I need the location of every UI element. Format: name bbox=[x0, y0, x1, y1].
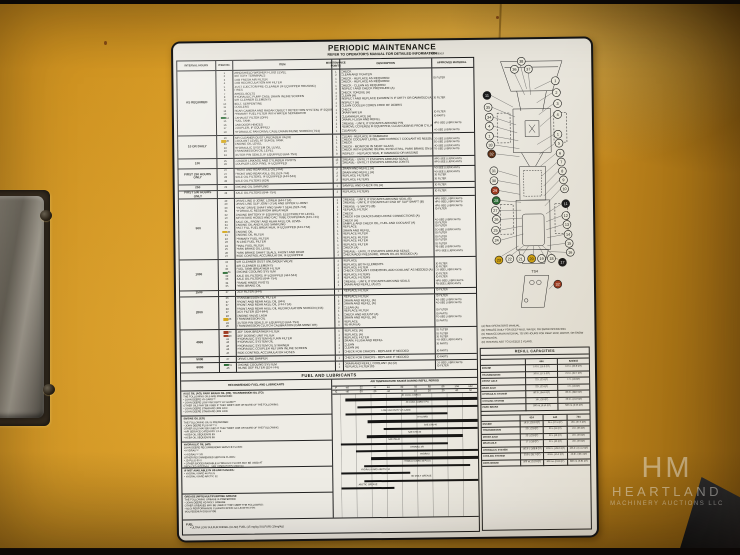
refill-value: 600 mL (0.63 QT) bbox=[543, 460, 566, 467]
diagram-callout: 25 bbox=[492, 226, 500, 234]
panel-handle bbox=[0, 196, 44, 418]
item-name-column: LOADER LINKAGE AND CYLINDER PIVOTSCOUPLE… bbox=[233, 158, 332, 168]
decal-right-column: TS4 383637123415678910111213141516171135… bbox=[476, 55, 592, 531]
diagram-callout: 36 bbox=[510, 65, 518, 73]
col-description: DESCRIPTION bbox=[339, 58, 431, 68]
col-maintenance-points: MAINTENANCE POINTS bbox=[331, 60, 339, 69]
svg-text:1: 1 bbox=[557, 133, 559, 137]
item-name-column: TRANSMISSION OIL FILTERFRONT AND REAR AX… bbox=[235, 295, 334, 329]
item-description-column: REPLACEREPLACE BOTH ELEMENTSREPLACE FILT… bbox=[342, 258, 434, 288]
diagram-callout: 28 bbox=[492, 197, 500, 205]
interval-label: 500 bbox=[179, 199, 218, 260]
lubricant-section-line: • ACEA OIL SEQUENCE E6 bbox=[184, 434, 330, 439]
svg-text:19: 19 bbox=[539, 257, 543, 261]
color-chip bbox=[223, 318, 228, 320]
item-number-column: 2929303132103334352021222324252627 bbox=[217, 199, 235, 260]
lubricant-recommendations: RECOMMENDED FUEL AND LUBRICANTS AXLE OIL… bbox=[181, 379, 334, 519]
interval-label: 2000 bbox=[180, 297, 218, 330]
svg-text:17: 17 bbox=[560, 261, 564, 265]
diagram-callout: 22 bbox=[506, 255, 514, 263]
diagram-callout: 38 bbox=[517, 57, 525, 65]
diagram-callout: 7 bbox=[557, 158, 565, 166]
celsius-label: C bbox=[332, 391, 340, 395]
item-description: GREASE - UNTIL IT ESCAPES AROUND JOINTS bbox=[342, 161, 432, 166]
diagram-callout: 9 bbox=[559, 176, 567, 184]
svg-text:13: 13 bbox=[565, 223, 569, 227]
refill-value: 800 mL (0.84 QT) bbox=[567, 459, 590, 466]
photo-edge-bottom bbox=[0, 548, 740, 555]
refill-value: 500 mL (0.53 QT) bbox=[525, 404, 557, 411]
diagram-callout: 35 bbox=[484, 103, 492, 111]
color-chip bbox=[222, 231, 227, 233]
celsius-tick: 0 bbox=[395, 390, 409, 394]
approved-material-column: JD FILTER bbox=[433, 182, 473, 188]
approved-material-column: MPG-SEE LUBRICANTSMPG-SEE LUBRICANTS bbox=[432, 156, 472, 165]
item-number: 27 bbox=[219, 255, 234, 259]
maintenance-points-column: 1 bbox=[335, 356, 343, 361]
diagram-callout: 18 bbox=[547, 254, 555, 262]
diagram-callout: 8 bbox=[558, 167, 566, 175]
equipment-photo: PERIODIC MAINTENANCE REFER TO OPERATOR'S… bbox=[0, 0, 740, 555]
refill-row-label: PARK BRAKE bbox=[482, 460, 520, 467]
maintenance-points: 1 bbox=[336, 350, 342, 354]
fahrenheit-tick: 50 bbox=[409, 385, 423, 389]
diagram-callout: 17 bbox=[558, 258, 566, 266]
svg-text:28: 28 bbox=[494, 199, 498, 203]
color-chip bbox=[224, 364, 229, 366]
maintenance-points: 1 bbox=[334, 129, 340, 133]
maintenance-group: 400039404142434445DEF TANK BREATHER FILT… bbox=[180, 326, 476, 356]
item-number: 28 bbox=[218, 192, 233, 196]
interval-label: 5000 bbox=[181, 357, 219, 363]
item-description-column: REPLACE (A)REPLACE (A)REPLACE FILTERDRAI… bbox=[342, 328, 434, 355]
svg-text:34: 34 bbox=[487, 116, 491, 120]
footnote: (C) REDUCE DRAIN INTERVAL TO 500 HOURS F… bbox=[482, 332, 588, 340]
lubricant-bar bbox=[341, 487, 394, 490]
item-name: OUTER PIN SEALS, IF EQUIPPED (644-TS4) bbox=[235, 152, 332, 157]
svg-text:18: 18 bbox=[549, 257, 553, 261]
lubricant-section: GREASE (MPG) MULTIPURPOSE GREASETHE FOLL… bbox=[182, 493, 332, 520]
item-description: DRAIN AND REFILL (A) (C) bbox=[343, 283, 433, 288]
diagram-callout: 4 bbox=[485, 122, 493, 130]
lubricant-section: HYDRAULIC OIL (HO)JOHN DEERE RECOMMENDED… bbox=[182, 441, 332, 469]
celsius-tick: -10 bbox=[381, 390, 395, 394]
diagram-callout: 27 bbox=[491, 206, 499, 214]
item-description: CLEAN (A) bbox=[342, 128, 432, 133]
fahrenheit-tick: 68 bbox=[422, 385, 436, 389]
diagram-callout: 19 bbox=[538, 255, 546, 263]
refill-capacities-title: REFILL CAPACITIES bbox=[481, 348, 589, 357]
svg-text:22: 22 bbox=[508, 257, 512, 261]
diagram-callout: 24 bbox=[493, 236, 501, 244]
svg-text:2: 2 bbox=[555, 91, 557, 95]
refill-tables: 444524/544ENGINE14.5 L (15.3 QT)19.5 L (… bbox=[481, 358, 590, 467]
maintenance-points-column: 11 bbox=[335, 362, 343, 371]
color-chip bbox=[224, 335, 229, 337]
color-chip bbox=[221, 140, 226, 142]
diagram-callout: 15 bbox=[565, 239, 573, 247]
approved-material-column: CG-SEE LUBRICANTSEO-SEE LUBRICANTSHO-SEE… bbox=[432, 133, 472, 156]
item-number-column: 29 bbox=[217, 185, 234, 190]
lubricant-sections: AXLE OIL (AO), PARK BRAKE OIL (PB), TRAN… bbox=[181, 389, 333, 519]
item-number-column: 192021222324 bbox=[216, 136, 233, 159]
lubricant-bar-label: SAE 0W-40 bbox=[388, 439, 400, 442]
footnote: (D) INTERVAL NOT TO EXCEED 2 YEARS. bbox=[482, 339, 588, 343]
diagram-callout: 20 bbox=[528, 255, 536, 263]
item-description: REPLACE FILTER bbox=[344, 289, 434, 294]
color-chip bbox=[221, 117, 226, 119]
item-description: RE-RUN (A) bbox=[344, 322, 434, 327]
item-number: 27 bbox=[220, 358, 235, 362]
diagram-callout: 14 bbox=[564, 230, 572, 238]
svg-text:4: 4 bbox=[488, 125, 490, 129]
lubricant-bars: JD COOL-GARD IIJD COOL-GARD II PGLOW VIS… bbox=[340, 393, 478, 517]
maintenance-group: AS REQUIRED123456789101112131415161718WI… bbox=[177, 68, 474, 135]
item-number: 18 bbox=[218, 130, 233, 134]
approved-material bbox=[436, 322, 474, 326]
item-description-column: GREASE - UNTIL IT ESCAPES AROUND SEAL (B… bbox=[341, 196, 434, 257]
diagram-callout: 31 bbox=[490, 167, 498, 175]
item-description-column: GREASE - UNTIL IT ESCAPES AROUND SEALSGR… bbox=[340, 156, 432, 166]
maintenance-decal: PERIODIC MAINTENANCE REFER TO OPERATOR'S… bbox=[171, 36, 599, 542]
approved-material-column: JD FILTER bbox=[433, 188, 473, 195]
color-chip bbox=[223, 272, 228, 274]
col-item-no: ITEM NO. bbox=[215, 61, 232, 70]
maintenance-points-column: 132 bbox=[332, 158, 340, 167]
item-number-column: 39404142434445 bbox=[218, 330, 235, 356]
svg-text:31: 31 bbox=[492, 169, 496, 173]
approved-material: JD FILTER bbox=[434, 189, 472, 193]
svg-text:23: 23 bbox=[497, 258, 501, 262]
lubricant-section-line: • HYDRAU GARD ARCTIC 32 bbox=[184, 474, 330, 479]
item-number: 28 bbox=[218, 180, 233, 184]
svg-text:24: 24 bbox=[495, 239, 499, 243]
approved-material-column: JD FILTERJD FILTERJD FILTERHO-SEE LUBRIC… bbox=[434, 327, 474, 353]
lubricant-bar-label: HY-GARD bbox=[418, 417, 428, 420]
diagram-callout: 12 bbox=[562, 212, 570, 220]
maintenance-points-column: 1 bbox=[333, 184, 341, 189]
item-description: CHECK FOR CRACKS - REPLACE IF NEEDED bbox=[344, 349, 434, 354]
item-number-column: 27 bbox=[219, 357, 236, 362]
approved-material: JD FILTER bbox=[434, 183, 472, 187]
item-number-column: 27 bbox=[218, 290, 235, 295]
maintenance-points: 1 bbox=[336, 324, 342, 328]
lubricant-section: ENGINE OIL (EO)THE FOLLOWING OIL IS PREF… bbox=[182, 415, 332, 443]
fahrenheit-tick: 104 bbox=[450, 385, 464, 389]
fahrenheit-tick: 32 bbox=[395, 385, 409, 389]
item-name: ENGINE OIL SAMPLING bbox=[235, 184, 332, 189]
item-name-column: AIR CLEANER DUST UNLOADER VALVECOOLANT L… bbox=[233, 134, 332, 158]
celsius-tick: -30 bbox=[354, 390, 368, 394]
item-description-column: CHECKCLEAN AND TIGHTENCHECK - REPLACE AS… bbox=[339, 68, 432, 133]
refill-capacities: REFILL CAPACITIES 444524/544ENGINE14.5 L… bbox=[480, 347, 592, 531]
svg-text:7: 7 bbox=[560, 160, 562, 164]
svg-text:32: 32 bbox=[490, 152, 494, 156]
interval-label: 10 OR DAILY bbox=[178, 136, 216, 159]
item-number: 26 bbox=[218, 163, 233, 167]
item-name-column: FRONT AND REAR AXLE OIL (444)FRONT AND R… bbox=[234, 167, 333, 184]
refill-value: 500 mL (0.53 QT) bbox=[557, 404, 589, 411]
item-description: REPLACE FILTERS bbox=[342, 177, 432, 182]
approved-material: JD PARTS bbox=[436, 349, 474, 353]
approved-material: HO-SEE LUBRICANTS bbox=[434, 127, 472, 131]
diagram-callout: 29 bbox=[491, 187, 499, 195]
maintenance-group: 10 OR DAILY192021222324AIR CLEANER DUST … bbox=[178, 132, 474, 159]
color-chip bbox=[224, 331, 229, 333]
diagram-callout: 34 bbox=[485, 113, 493, 121]
item-name-column: AIR CLEANER DUST UNLOADER VALVEAIR CLEAN… bbox=[235, 259, 334, 289]
svg-text:11: 11 bbox=[485, 94, 489, 98]
item-description: REPLACE FILTERS bbox=[342, 189, 432, 194]
item-name: AXLE OIL FILTERS (644-TS4) bbox=[235, 190, 332, 195]
fahrenheit-tick: 14 bbox=[381, 385, 395, 389]
diagram-callout: 32 bbox=[554, 280, 562, 288]
approved-material: JD PARTS bbox=[436, 355, 474, 359]
item-number: 45 bbox=[220, 352, 235, 356]
celsius-tick: -40 bbox=[340, 390, 354, 394]
svg-text:10: 10 bbox=[562, 187, 566, 191]
item-description-column: REPLACE FILTERS bbox=[341, 188, 433, 196]
watermark-subtitle: MACHINERY AUCTIONS LLC bbox=[598, 501, 736, 507]
maintenance-points: 1 bbox=[335, 254, 341, 258]
item-number: 27 bbox=[220, 291, 235, 295]
maintenance-points: 1 bbox=[335, 284, 341, 288]
item-number: 26 bbox=[220, 325, 235, 329]
ts4-label: TS4 bbox=[531, 270, 538, 274]
fahrenheit-tick: -4 bbox=[368, 386, 382, 390]
svg-text:20: 20 bbox=[530, 257, 534, 261]
interval-label: FIRST 250 HOURS ONLY bbox=[179, 169, 217, 185]
fuel-note: FUEL • ULTRA LOW SULFUR DIESEL (ULSD) FU… bbox=[183, 516, 479, 535]
svg-text:30: 30 bbox=[492, 179, 496, 183]
item-number: 29 bbox=[218, 186, 233, 190]
approved-material-column: JD FILTER bbox=[434, 287, 474, 293]
svg-text:4: 4 bbox=[557, 113, 559, 117]
col-approved-material: APPROVED MATERIAL bbox=[431, 58, 471, 67]
interval-label: AS REQUIRED bbox=[177, 71, 216, 135]
svg-text:36: 36 bbox=[512, 68, 516, 72]
panel-bolt bbox=[43, 384, 55, 395]
diagram-callout: 11 bbox=[483, 91, 491, 99]
svg-text:33: 33 bbox=[488, 143, 492, 147]
refill-table: 624644724ENGINE19.5 L (20.6 QT)26 L (27.… bbox=[482, 413, 591, 467]
maintenance-table-body: AS REQUIRED123456789101112131415161718WI… bbox=[177, 68, 477, 372]
approved-material-column: JD PARTS bbox=[435, 354, 475, 360]
svg-text:14: 14 bbox=[566, 233, 570, 237]
item-number-column: 199303132333435 bbox=[218, 260, 235, 289]
maintenance-points-column: 2222 bbox=[333, 167, 341, 183]
diagram-callout: 1 bbox=[554, 130, 562, 138]
approved-material: JD FILTER bbox=[434, 177, 472, 181]
diagram-callout: 13 bbox=[563, 220, 571, 228]
item-name: RIDE CONTROL ACCUMULATOR HOSES bbox=[237, 350, 334, 355]
rust-speck bbox=[104, 41, 107, 45]
item-number-column: 363737382728232426 bbox=[218, 296, 235, 329]
ts4-subdiagram bbox=[521, 275, 549, 307]
item-description: INSPECT - REPLACE SEAL IF DAMAGED OR MIS… bbox=[342, 151, 432, 156]
approved-material bbox=[435, 252, 473, 256]
maintenance-points: 1 bbox=[336, 356, 342, 360]
lubricant-bar-label: HYDRAU bbox=[420, 454, 430, 457]
approved-material: JD FILTER bbox=[435, 288, 473, 292]
diagram-callout: 23 bbox=[495, 256, 503, 264]
lubricant-section: AXLE OIL (AO), PARK BRAKE OIL (PB), TRAN… bbox=[181, 389, 331, 417]
celsius-tick: 50 bbox=[464, 389, 478, 393]
svg-text:8: 8 bbox=[561, 169, 563, 173]
diagram-callout: 1 bbox=[485, 132, 493, 140]
diagram-callout: 1 bbox=[551, 77, 559, 85]
col-item: ITEM bbox=[232, 60, 331, 70]
svg-text:3: 3 bbox=[556, 102, 558, 106]
maintenance-points: 1 bbox=[336, 366, 342, 370]
interval-label: 4000 bbox=[180, 330, 218, 356]
approved-material bbox=[434, 151, 472, 155]
maintenance-points: 2 bbox=[334, 190, 340, 194]
item-name: COUPLER LOCK PINS, IF EQUIPPED bbox=[235, 162, 332, 167]
item-description-column: DRAIN AND REFILL (A)DRAIN AND REFILL (A)… bbox=[341, 166, 433, 183]
diagram-callout: 4 bbox=[554, 110, 562, 118]
svg-text:5: 5 bbox=[558, 142, 560, 146]
celsius-tick: 10 bbox=[409, 390, 423, 394]
refill-value: 500 mL (0.53 QT) bbox=[520, 460, 543, 467]
item-number-column: 28 bbox=[217, 191, 234, 198]
svg-text:6: 6 bbox=[559, 151, 561, 155]
item-name: TRANSMISSION CLUTCH CALIBRATION (CAB MON… bbox=[237, 324, 334, 329]
item-description-column: REPLACE FILTERDRAIN AND REFILL (A)DRAIN … bbox=[342, 294, 434, 328]
decal-content: PERIODIC MAINTENANCE REFER TO OPERATOR'S… bbox=[173, 38, 597, 540]
machine-diagram: TS4 383637123415678910111213141516171135… bbox=[476, 55, 589, 324]
fuel-lubricants-section: RECOMMENDED FUEL AND LUBRICANTS AXLE OIL… bbox=[181, 377, 479, 519]
diagram-callout: 10 bbox=[561, 185, 569, 193]
refill-table: 444524/544ENGINE14.5 L (15.3 QT)19.5 L (… bbox=[481, 358, 590, 412]
maintenance-group: 1000199303132333435AIR CLEANER DUST UNLO… bbox=[180, 256, 476, 290]
approved-material-column: MPG-SEE LUBRICANTSMPG-SEE LUBRICANTSMPG-… bbox=[433, 196, 474, 257]
footnotes: (A) SEE OPERATOR'S MANUAL.(B) GREASE DAI… bbox=[479, 323, 589, 346]
celsius-tick: 40 bbox=[450, 389, 464, 393]
watermark-logo: HM bbox=[598, 454, 736, 482]
svg-text:21: 21 bbox=[519, 257, 523, 261]
approved-material: MPG-SEE LUBRICANTS bbox=[434, 160, 472, 164]
maintenance-points-column: 111118 bbox=[332, 134, 340, 156]
item-description: CHECK FOR CRACKS - REPLACE IF NEEDED bbox=[344, 355, 434, 360]
watermark: HM HEARTLAND MACHINERY AUCTIONS LLC bbox=[598, 454, 736, 508]
diagram-callout: 21 bbox=[517, 255, 525, 263]
svg-text:38: 38 bbox=[519, 60, 523, 64]
item-name: HYDRAULIC FAN DRIVE CASE DRAIN INLINE SC… bbox=[235, 129, 332, 134]
svg-text:16: 16 bbox=[568, 251, 572, 255]
celsius-tick: 20 bbox=[422, 389, 436, 393]
item-name: DCV FILTER (444) bbox=[237, 290, 334, 295]
maintenance-points-column: 1 bbox=[334, 289, 342, 294]
item-name-column: DEF TANK BREATHER FILTERDEF DOSING UNIT … bbox=[235, 329, 334, 356]
diagram-callout: 37 bbox=[524, 65, 532, 73]
item-name: PARK BRAKE OIL bbox=[236, 284, 333, 289]
maintenance-table: INTERVAL HOURS ITEM NO. ITEM MAINTENANCE… bbox=[176, 57, 480, 536]
interval-label: 100 bbox=[178, 159, 216, 168]
svg-text:25: 25 bbox=[493, 229, 497, 233]
diagram-callout: 30 bbox=[490, 177, 498, 185]
item-name-column: AXLE OIL FILTERS (644-TS4) bbox=[234, 190, 333, 198]
maintenance-points: 8 bbox=[334, 152, 340, 156]
refill-row-label: PARK BRAKE bbox=[481, 405, 525, 412]
fahrenheit-tick: 86 bbox=[436, 385, 450, 389]
svg-text:15: 15 bbox=[567, 242, 571, 246]
svg-text:27: 27 bbox=[493, 209, 497, 213]
interval-label: FIRST 500 HOURS ONLY bbox=[179, 191, 217, 198]
item-name: AXLE OIL FILTERS (624) bbox=[235, 178, 332, 183]
celsius-tick: 30 bbox=[436, 389, 450, 393]
watermark-name: HEARTLAND bbox=[598, 484, 736, 499]
lubricant-section: IF NOT AVAILABLE IN US AND CANADA:• HYDR… bbox=[182, 467, 332, 495]
svg-text:1: 1 bbox=[488, 134, 490, 138]
approved-material-column: JD FILTERJD FILTERCG-SEE LUBRICANTSJD FI… bbox=[434, 257, 474, 287]
item-description-column: CLEAN - REPLACE IF DAMAGEDCHECK COOLANT … bbox=[340, 133, 432, 156]
diagram-callout: 33 bbox=[487, 141, 495, 149]
fahrenheit-tick: -22 bbox=[354, 386, 368, 390]
interval-label: 1500 bbox=[180, 291, 218, 297]
approved-material: PB-SEE LUBRICANTS bbox=[435, 282, 473, 286]
svg-text:32: 32 bbox=[556, 283, 560, 287]
item-number-column: 2526 bbox=[216, 159, 233, 168]
celsius-tick: -20 bbox=[368, 390, 382, 394]
item-name-column: WINDSHIELD WASHER FLUID LEVELBATTERY TER… bbox=[232, 70, 332, 135]
item-number-column: 3146 bbox=[219, 363, 236, 372]
item-description: CHECK/ADD PRESSURE, DRAIN OIL AS NEEDED … bbox=[343, 252, 433, 257]
interval-label: 250 bbox=[179, 185, 217, 191]
rust-speck bbox=[496, 16, 499, 19]
maintenance-points-column: 2 bbox=[333, 190, 341, 197]
svg-text:37: 37 bbox=[526, 67, 530, 71]
maintenance-group: 5002929303132103334352021222324252627DRI… bbox=[179, 195, 476, 260]
col-interval-hours: INTERVAL HOURS bbox=[177, 61, 215, 70]
diagram-callout: 16 bbox=[566, 248, 574, 256]
item-number: 35 bbox=[219, 285, 234, 289]
maintenance-points: 2 bbox=[334, 178, 340, 182]
approved-material-column: JD FILTERAO-SEE LUBRICANTSAO-SEE LUBRICA… bbox=[434, 293, 474, 326]
item-description: SAMPLE AND CHECK OIL (A) bbox=[342, 183, 432, 188]
maintenance-points: 1 bbox=[336, 290, 342, 294]
diagram-callout: 26 bbox=[492, 215, 500, 223]
item-number: 24 bbox=[218, 154, 233, 158]
svg-text:35: 35 bbox=[486, 106, 490, 110]
photo-edge-top bbox=[0, 0, 740, 4]
diagram-callout: 6 bbox=[556, 149, 564, 157]
svg-text:29: 29 bbox=[493, 189, 497, 193]
item-number-column: 123456789101112131415161718 bbox=[215, 71, 233, 135]
maintenance-points: 1 bbox=[334, 184, 340, 188]
item-name: RIDE CONTROL ACCUMULATOR, IF EQUIPPED bbox=[236, 254, 333, 259]
svg-text:9: 9 bbox=[562, 178, 564, 182]
item-name-column: DRIVE LINE U-JOINT, LOWER (644-TS4)DRIVE… bbox=[234, 198, 334, 260]
maintenance-group: 2000363737382728232426TRANSMISSION OIL F… bbox=[180, 292, 476, 329]
diagram-callout: 5 bbox=[555, 139, 563, 147]
fahrenheit-tick: 122 bbox=[463, 384, 477, 388]
svg-text:26: 26 bbox=[494, 218, 498, 222]
svg-text:1: 1 bbox=[554, 79, 556, 83]
lubricant-section-line: • JOHN DEERE STANDARD JDM J20D bbox=[183, 409, 329, 414]
diagram-callout: 11 bbox=[562, 200, 570, 208]
diagram-callout: 2 bbox=[552, 89, 560, 97]
lubricant-section-line: MOLYBDENUM DISULFIDE bbox=[185, 509, 331, 514]
approved-material-column: AO-SEE LUBRICANTSAO-SEE LUBRICANTSJD FIL… bbox=[432, 165, 472, 181]
lubricant-bar-row: ARCTIC GREASE bbox=[341, 482, 478, 491]
item-number-column: 27272828 bbox=[217, 168, 234, 184]
diagram-callout: 32 bbox=[488, 150, 496, 158]
approved-material-column: JD FILTER JD FILTER JD FILTERJD PARTS MP… bbox=[431, 68, 472, 132]
maintenance-points: 2 bbox=[334, 162, 340, 166]
diagram-callout: 3 bbox=[554, 99, 562, 107]
interval-label: 1000 bbox=[180, 260, 218, 290]
